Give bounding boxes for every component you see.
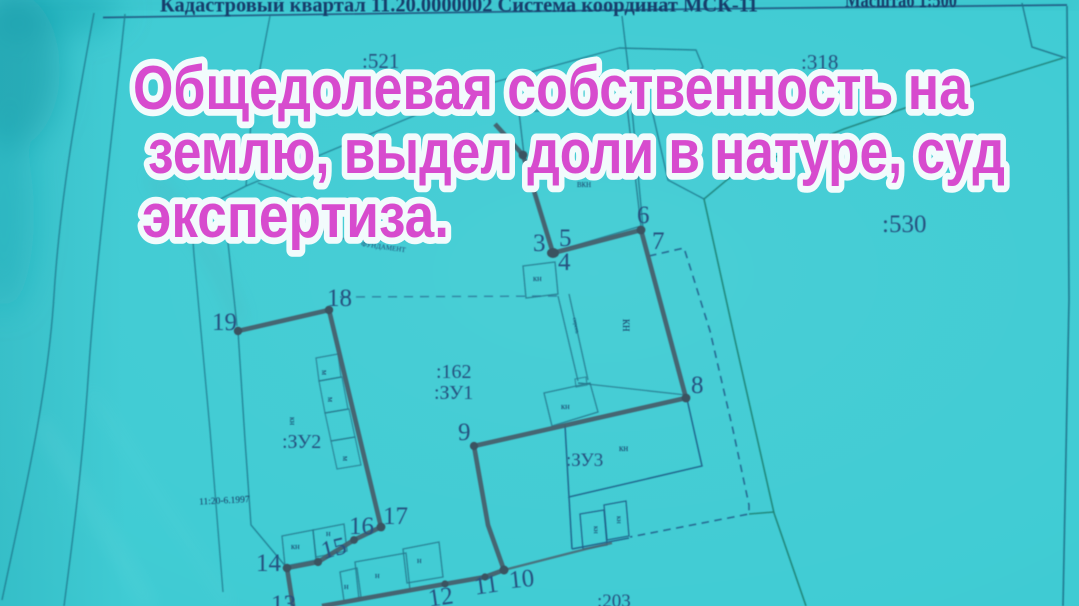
svg-text:9: 9 (458, 419, 471, 446)
svg-text:18: 18 (327, 285, 352, 312)
svg-text:19: 19 (212, 309, 237, 336)
svg-text:14: 14 (256, 550, 282, 577)
svg-text::530: :530 (882, 211, 926, 238)
svg-text:землю, выдел доли в натуре, су: землю, выдел доли в натуре, суд (148, 118, 1005, 187)
svg-text:13: 13 (271, 591, 296, 606)
svg-text:4: 4 (558, 249, 571, 276)
svg-text:8: 8 (691, 372, 704, 399)
svg-text:16: 16 (349, 513, 374, 540)
svg-text:КН: КН (621, 319, 631, 332)
svg-text:м: м (326, 397, 335, 402)
svg-text:12: 12 (426, 582, 455, 606)
svg-text:кн: кн (619, 443, 628, 453)
svg-text:кн: кн (288, 417, 297, 426)
svg-text:кн: кн (561, 401, 570, 411)
svg-text:экспертиза.: экспертиза. (142, 182, 449, 251)
svg-text:Кадастровый квартал 11.20.0000: Кадастровый квартал 11.20.0000002 Систем… (160, 0, 758, 17)
svg-text:кн: кн (592, 526, 601, 534)
svg-text:кн: кн (615, 516, 624, 524)
svg-text:3: 3 (533, 230, 546, 257)
svg-text:6: 6 (637, 202, 650, 229)
svg-text:н: н (417, 555, 422, 565)
svg-text:м: м (320, 370, 329, 375)
svg-text::203: :203 (597, 591, 631, 606)
svg-text:м: м (341, 456, 350, 461)
svg-text::ЗУ1: :ЗУ1 (434, 382, 473, 404)
svg-text:11: 11 (472, 570, 500, 600)
svg-text:7: 7 (652, 228, 665, 255)
svg-text:н: н (326, 528, 331, 538)
svg-text::162: :162 (436, 361, 472, 383)
svg-text:10: 10 (508, 565, 536, 594)
svg-text::ЗУ2: :ЗУ2 (282, 431, 321, 453)
svg-text:кн: кн (291, 541, 300, 551)
svg-text:н: н (344, 581, 349, 591)
svg-text:17: 17 (383, 503, 408, 530)
svg-text:5: 5 (559, 225, 572, 252)
svg-text:н: н (375, 570, 380, 580)
svg-text::ЗУ3: :ЗУ3 (566, 450, 603, 471)
svg-text:Масштаб 1:500: Масштаб 1:500 (845, 0, 957, 12)
svg-text:Общедолевая собственность на: Общедолевая собственность на (133, 54, 968, 123)
svg-text:кн: кн (533, 273, 542, 283)
